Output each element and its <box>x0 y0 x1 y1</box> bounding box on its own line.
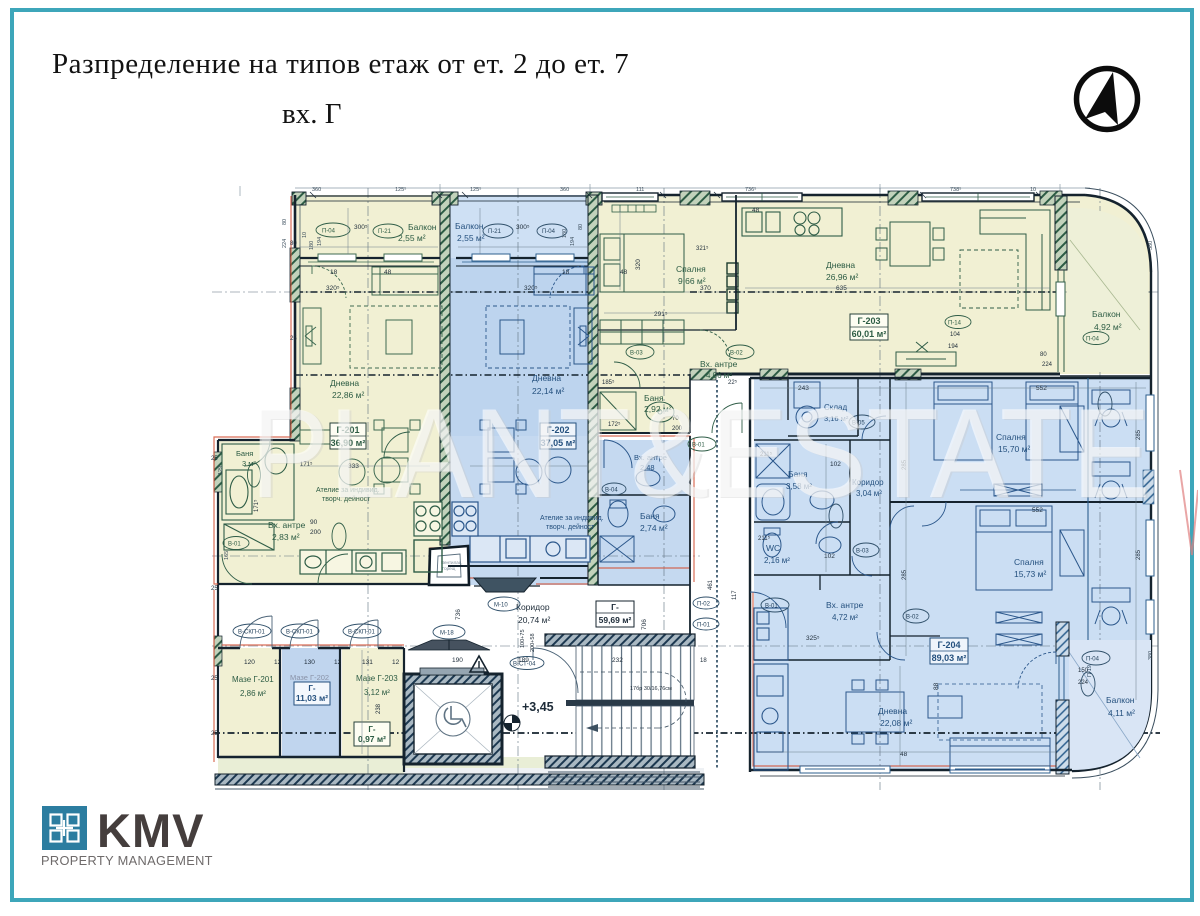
svg-text:В-СКП-01: В-СКП-01 <box>286 630 313 636</box>
svg-text:2,48: 2,48 <box>640 463 655 472</box>
svg-text:4,92 м²: 4,92 м² <box>1094 322 1122 332</box>
svg-text:В-03: В-03 <box>856 549 869 555</box>
svg-text:320: 320 <box>635 259 642 270</box>
svg-text:2,55 м²: 2,55 м² <box>398 233 426 243</box>
svg-text:80: 80 <box>578 224 584 230</box>
svg-text:Баня: Баня <box>236 449 253 458</box>
svg-text:Балкон: Балкон <box>408 222 437 232</box>
svg-text:Мазе Г-201: Мазе Г-201 <box>232 675 274 684</box>
svg-text:Г-: Г- <box>308 684 316 693</box>
svg-text:185⁵: 185⁵ <box>602 379 615 386</box>
svg-text:В-02: В-02 <box>730 351 743 357</box>
svg-text:3,16 м²: 3,16 м² <box>824 414 849 423</box>
svg-text:4,11 м²: 4,11 м² <box>1108 708 1135 718</box>
svg-text:461: 461 <box>708 579 714 590</box>
svg-text:22,14 м²: 22,14 м² <box>532 386 564 396</box>
svg-text:3,58 м²: 3,58 м² <box>786 482 812 491</box>
svg-text:2,16 м²: 2,16 м² <box>764 556 790 565</box>
svg-text:творч. дейност: творч. дейност <box>546 523 595 531</box>
svg-text:200: 200 <box>310 529 321 536</box>
svg-text:Г-202: Г-202 <box>546 425 569 435</box>
svg-text:Балкон: Балкон <box>1092 309 1121 319</box>
svg-text:Дневна: Дневна <box>532 373 561 383</box>
svg-text:37,05 м²: 37,05 м² <box>541 438 576 448</box>
svg-text:100+75: 100+75 <box>520 629 526 648</box>
svg-text:15,73 м²: 15,73 м² <box>1014 569 1046 579</box>
svg-text:творч. дейност: творч. дейност <box>322 495 371 503</box>
svg-text:4,72 м²: 4,72 м² <box>832 613 858 622</box>
svg-text:360: 360 <box>560 187 569 193</box>
svg-text:Мазе Г-203: Мазе Г-203 <box>356 674 398 683</box>
svg-text:Г-: Г- <box>368 725 376 734</box>
svg-text:224: 224 <box>1042 362 1053 368</box>
svg-text:2,86 м²: 2,86 м² <box>240 689 266 698</box>
svg-text:KMV: KMV <box>97 804 204 857</box>
svg-text:285: 285 <box>1136 549 1142 560</box>
svg-text:48: 48 <box>384 269 392 276</box>
svg-text:102: 102 <box>830 461 841 468</box>
svg-text:180: 180 <box>309 241 315 250</box>
svg-text:Спалня: Спалня <box>1014 557 1044 567</box>
svg-text:Коридор: Коридор <box>516 602 550 612</box>
svg-text:171⁵: 171⁵ <box>253 499 260 512</box>
svg-text:59,69 м²: 59,69 м² <box>599 615 632 625</box>
svg-text:Спалня: Спалня <box>676 264 706 274</box>
svg-text:360: 360 <box>312 187 321 193</box>
svg-text:22,08 м²: 22,08 м² <box>880 718 912 728</box>
svg-text:165: 165 <box>224 551 230 560</box>
svg-text:Вх. антре: Вх. антре <box>268 520 306 530</box>
svg-text:291⁵: 291⁵ <box>654 311 668 318</box>
svg-text:90: 90 <box>310 519 318 526</box>
svg-text:190: 190 <box>452 657 463 664</box>
svg-text:Вентилац.: Вентилац. <box>441 560 463 565</box>
svg-text:325⁵: 325⁵ <box>806 635 820 642</box>
svg-text:В-04: В-04 <box>605 488 618 494</box>
svg-text:102: 102 <box>824 553 835 560</box>
svg-text:25: 25 <box>211 731 218 737</box>
svg-text:380: 380 <box>1148 241 1154 250</box>
svg-text:П-01: П-01 <box>697 623 711 629</box>
svg-text:25: 25 <box>211 456 218 462</box>
svg-text:Дневна: Дневна <box>826 260 855 270</box>
svg-text:2,92 м²: 2,92 м² <box>644 404 672 414</box>
svg-text:36,90 м²: 36,90 м² <box>331 438 366 448</box>
svg-text:WC: WC <box>766 543 780 553</box>
svg-text:70: 70 <box>672 416 679 422</box>
svg-text:17бр 30/16,76см: 17бр 30/16,76см <box>630 686 672 692</box>
svg-text:635: 635 <box>836 285 847 292</box>
svg-text:Дневна: Дневна <box>878 706 907 716</box>
svg-text:М-10: М-10 <box>494 603 508 609</box>
svg-text:211⁵: 211⁵ <box>758 535 771 542</box>
svg-text:П-04: П-04 <box>1086 337 1100 343</box>
svg-text:180: 180 <box>562 229 568 238</box>
svg-text:26,96 м²: 26,96 м² <box>826 272 858 282</box>
svg-text:88: 88 <box>933 682 940 690</box>
svg-text:10: 10 <box>1030 187 1036 193</box>
svg-text:Спалня: Спалня <box>996 432 1026 442</box>
svg-text:+3,45: +3,45 <box>522 700 554 714</box>
svg-text:4,06 м²: 4,06 м² <box>706 371 732 380</box>
svg-text:12: 12 <box>392 659 400 666</box>
svg-text:104: 104 <box>950 332 961 338</box>
svg-text:В-02: В-02 <box>906 615 919 621</box>
svg-text:18: 18 <box>330 269 338 276</box>
svg-text:150: 150 <box>1078 668 1089 674</box>
svg-text:В-03: В-03 <box>630 351 643 357</box>
svg-text:48: 48 <box>620 269 628 276</box>
svg-text:736: 736 <box>455 609 462 620</box>
svg-text:80: 80 <box>290 241 297 247</box>
svg-text:Г-201: Г-201 <box>336 425 359 435</box>
svg-text:2,74 м²: 2,74 м² <box>640 523 668 533</box>
svg-text:Склад: Склад <box>824 403 847 412</box>
svg-text:М-18: М-18 <box>440 631 454 637</box>
svg-text:736⁵: 736⁵ <box>745 186 756 193</box>
svg-text:12: 12 <box>274 659 282 666</box>
svg-text:22,86 м²: 22,86 м² <box>332 390 364 400</box>
svg-text:224: 224 <box>282 239 288 248</box>
svg-text:172⁵: 172⁵ <box>608 421 621 428</box>
svg-text:Баня: Баня <box>640 511 660 521</box>
svg-text:211⁵: 211⁵ <box>760 451 773 458</box>
svg-text:224: 224 <box>1078 680 1089 686</box>
svg-text:Г-203: Г-203 <box>857 316 880 326</box>
svg-text:П-14: П-14 <box>948 321 962 327</box>
svg-text:В-СКП-01: В-СКП-01 <box>238 630 265 636</box>
svg-text:194: 194 <box>948 344 959 350</box>
svg-text:194: 194 <box>317 237 323 246</box>
svg-text:П-04: П-04 <box>542 229 556 235</box>
svg-text:200+58: 200+58 <box>530 633 536 652</box>
svg-text:200: 200 <box>672 426 683 432</box>
svg-text:333: 333 <box>348 463 359 470</box>
svg-text:18: 18 <box>562 269 570 276</box>
svg-text:243: 243 <box>798 385 809 392</box>
svg-text:48: 48 <box>752 207 760 214</box>
svg-text:Г-204: Г-204 <box>937 640 960 650</box>
svg-text:285: 285 <box>902 569 908 580</box>
svg-text:320⁵: 320⁵ <box>524 285 538 292</box>
svg-text:П-04: П-04 <box>322 229 336 235</box>
svg-text:25: 25 <box>290 336 297 342</box>
svg-text:300⁵: 300⁵ <box>516 224 530 231</box>
svg-text:320⁵: 320⁵ <box>326 285 340 292</box>
svg-text:11,03 м²: 11,03 м² <box>296 693 328 703</box>
svg-text:3,04 м²: 3,04 м² <box>856 489 882 498</box>
svg-text:300⁵: 300⁵ <box>354 224 368 231</box>
svg-text:321⁵: 321⁵ <box>696 245 709 252</box>
svg-text:18: 18 <box>700 658 707 664</box>
svg-text:80: 80 <box>1040 352 1047 358</box>
svg-text:380: 380 <box>1148 651 1154 660</box>
svg-text:89,03 м²: 89,03 м² <box>932 653 967 663</box>
svg-text:Вх. антре: Вх. антре <box>826 600 864 610</box>
svg-text:238: 238 <box>376 703 382 714</box>
svg-text:Ателие за индивид.: Ателие за индивид. <box>316 487 380 494</box>
svg-text:Балкон: Балкон <box>455 221 484 231</box>
svg-text:Вх. антре: Вх. антре <box>634 453 667 462</box>
svg-text:Балкон: Балкон <box>1106 695 1135 705</box>
svg-text:131: 131 <box>362 659 373 666</box>
svg-text:80: 80 <box>282 219 288 225</box>
svg-text:В-01: В-01 <box>228 542 241 548</box>
svg-text:П-02: П-02 <box>697 602 711 608</box>
svg-text:125⁵: 125⁵ <box>395 186 406 193</box>
svg-text:В-05: В-05 <box>852 421 865 427</box>
svg-text:В-01: В-01 <box>692 443 705 449</box>
svg-text:Баня: Баня <box>788 469 808 479</box>
svg-text:25: 25 <box>211 586 218 592</box>
svg-text:Г-: Г- <box>611 602 619 612</box>
svg-text:232: 232 <box>612 657 623 664</box>
svg-text:60,01 м²: 60,01 м² <box>852 329 887 339</box>
svg-text:552: 552 <box>1036 385 1047 392</box>
svg-text:Ателие за индивид.: Ателие за индивид. <box>540 515 604 522</box>
svg-text:П-21: П-21 <box>378 229 392 235</box>
svg-text:194: 194 <box>570 237 576 246</box>
svg-text:552: 552 <box>1032 507 1043 514</box>
svg-text:В-01: В-01 <box>765 604 778 610</box>
svg-text:285: 285 <box>902 459 908 470</box>
svg-text:120: 120 <box>244 659 255 666</box>
svg-text:PROPERTY MANAGEMENT: PROPERTY MANAGEMENT <box>41 853 213 868</box>
svg-text:Дневна: Дневна <box>330 378 359 388</box>
svg-text:3,12 м²: 3,12 м² <box>364 688 390 697</box>
svg-text:370: 370 <box>700 285 711 292</box>
svg-text:285: 285 <box>1136 429 1142 440</box>
svg-text:22⁵: 22⁵ <box>728 379 738 386</box>
svg-text:129: 129 <box>218 466 224 475</box>
svg-text:125⁵: 125⁵ <box>470 186 481 193</box>
svg-text:12: 12 <box>334 659 342 666</box>
svg-text:15,70 м²: 15,70 м² <box>998 444 1030 454</box>
svg-text:П-04: П-04 <box>1086 657 1100 663</box>
svg-text:2,55 м²: 2,55 м² <box>457 233 485 243</box>
svg-text:Баня: Баня <box>644 393 664 403</box>
svg-text:130: 130 <box>304 659 315 666</box>
svg-text:189: 189 <box>518 657 529 664</box>
svg-text:2,83 м²: 2,83 м² <box>272 532 300 542</box>
svg-text:П-21: П-21 <box>488 229 502 235</box>
svg-text:706: 706 <box>641 619 648 630</box>
svg-text:20,74 м²: 20,74 м² <box>518 615 550 625</box>
svg-text:Коридор: Коридор <box>852 478 884 487</box>
svg-text:171⁵: 171⁵ <box>300 461 313 468</box>
svg-text:10: 10 <box>302 232 308 238</box>
svg-text:111: 111 <box>636 187 644 193</box>
svg-text:Вх. антре: Вх. антре <box>700 359 738 369</box>
svg-text:738⁵: 738⁵ <box>950 186 961 193</box>
svg-text:117: 117 <box>732 590 738 600</box>
svg-text:В-СКП-01: В-СКП-01 <box>348 630 375 636</box>
svg-text:25: 25 <box>211 676 218 682</box>
svg-text:Мазе Г-202: Мазе Г-202 <box>290 673 329 682</box>
